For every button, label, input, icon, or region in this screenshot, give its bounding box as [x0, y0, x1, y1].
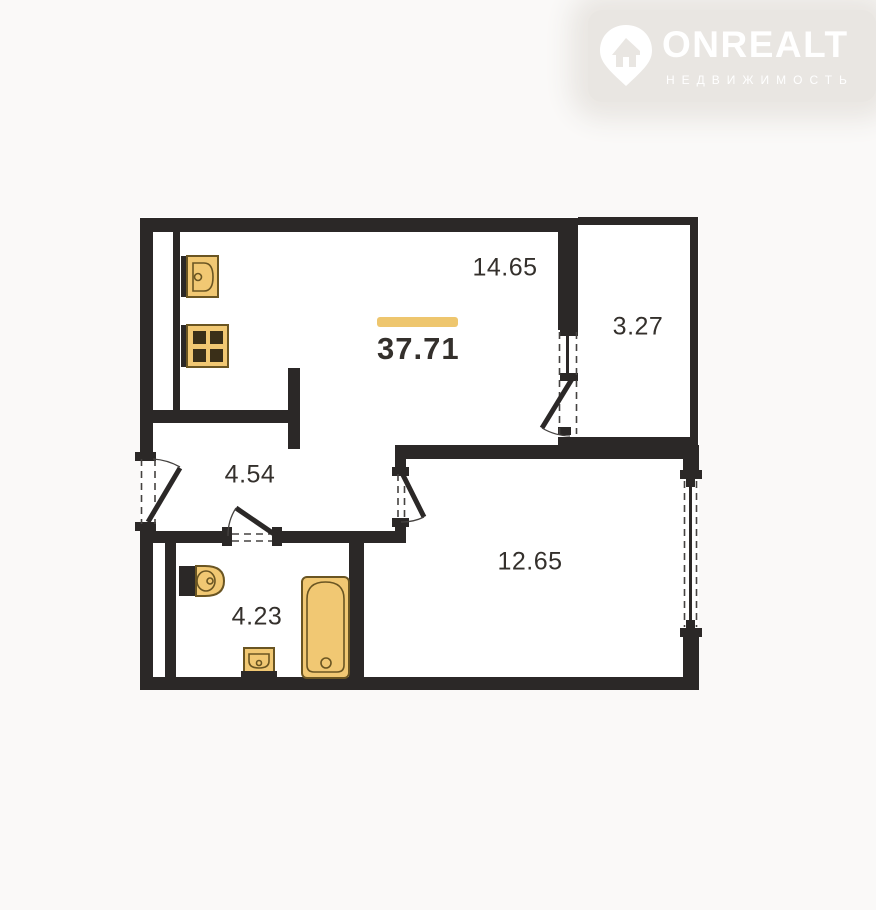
bedroom-window-frame [689, 485, 692, 622]
wall-hall-bottom-left [140, 531, 227, 543]
wall-hall-bottom-right [277, 531, 406, 543]
bedroom-window-jamb-top [680, 470, 702, 479]
bathtub [302, 577, 349, 678]
stove-burner [193, 331, 206, 344]
toilet-bowl [196, 566, 224, 596]
bedroom-window-jamb-bottom [680, 628, 702, 637]
room-area-label-living-room: 14.65 [472, 254, 537, 283]
onrealt-logo: ONREALT НЕДВИЖИМОСТЬ [588, 10, 876, 102]
logo-brand-text: ONREALT [662, 24, 849, 66]
wall-bathroom-right [349, 531, 364, 690]
total-area-label: 37.71 [377, 331, 460, 367]
wall-living-loggia-divider [558, 218, 578, 330]
wall-kitchen-shaft [173, 230, 180, 412]
wall-left-upper [140, 218, 153, 455]
total-area-underline [377, 317, 458, 327]
wall-loggia-right [690, 217, 698, 451]
wall-bottom [140, 677, 699, 690]
wall-bathroom-shaft [165, 543, 176, 690]
room-area-label-bathroom: 4.23 [232, 603, 283, 632]
loggia-window-frame [566, 334, 569, 375]
room-area-label-hallway: 4.54 [225, 461, 276, 490]
bathroom-sink [241, 648, 277, 678]
room-area-label-loggia: 3.27 [613, 313, 664, 342]
kitchen-sink [181, 256, 218, 297]
floor-plan-drawing [0, 0, 876, 910]
toilet [179, 566, 224, 596]
bathroom-door-jamb-left [222, 527, 232, 546]
stove-burner [210, 331, 223, 344]
room-area-label-bedroom: 12.65 [497, 548, 562, 577]
wall-bedroom-top [395, 445, 699, 459]
entry-door-jamb-top [135, 452, 156, 461]
wall-top-main [140, 218, 578, 232]
house-pin-icon [598, 24, 654, 88]
floor-plan-page: 14.65 3.27 4.54 4.23 12.65 37.71 ONREALT… [0, 0, 876, 910]
wall-divider-stub [288, 368, 300, 449]
bathroom-sink-base [241, 671, 277, 678]
stove-burner [210, 349, 223, 362]
wall-loggia-top [578, 217, 698, 225]
bathtub-body [302, 577, 349, 678]
entry-door-jamb-bottom [135, 522, 156, 531]
toilet-tank [179, 566, 196, 596]
wall-left-lower [140, 532, 153, 690]
logo-tagline-text: НЕДВИЖИМОСТЬ [666, 73, 854, 87]
stove [181, 325, 228, 367]
bedroom-door-jamb-bottom [392, 518, 409, 527]
house-pin-shape [600, 25, 652, 86]
wall-bedroom-right-lower [683, 637, 699, 690]
stove-burner [193, 349, 206, 362]
